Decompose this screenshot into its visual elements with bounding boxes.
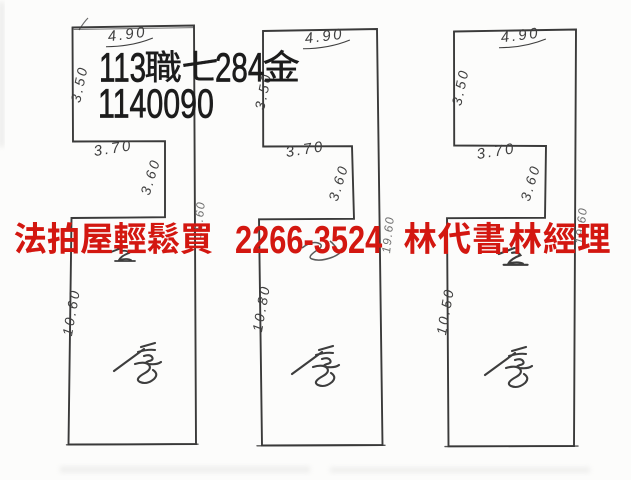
svg-text:1140090: 1140090 <box>98 81 214 126</box>
svg-text:284: 284 <box>215 45 264 91</box>
svg-text:2266-3524: 2266-3524 <box>235 219 383 262</box>
